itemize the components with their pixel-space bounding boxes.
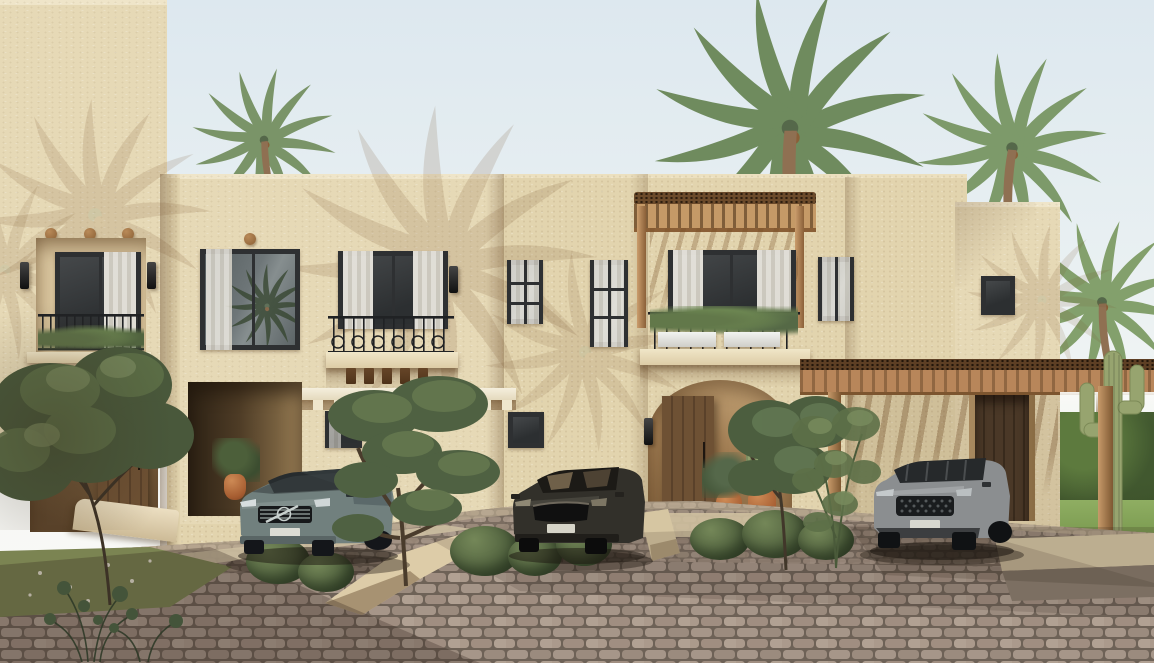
ground-window-b	[508, 412, 544, 448]
center-upper-left-window	[200, 249, 300, 350]
center-balcony-slab	[326, 352, 458, 368]
window-mullion	[608, 260, 611, 347]
parapet-slope-shadow	[955, 202, 1035, 287]
car-sedan-dark	[503, 446, 655, 566]
wall-sconce	[644, 418, 653, 445]
window-mullion	[507, 282, 543, 285]
wall-sconce	[147, 262, 156, 289]
window-curtain	[206, 249, 232, 350]
pergola-right-window	[818, 257, 854, 321]
tree-center-sculpted	[318, 368, 502, 588]
pergola-balcony-slab	[640, 349, 810, 365]
mid-narrow-window-a	[507, 260, 543, 324]
window-mullion	[252, 249, 255, 350]
beam-end-dot	[244, 233, 256, 245]
window-glass	[986, 281, 1010, 310]
mid-narrow-window-b	[590, 260, 628, 347]
window-mullion	[507, 302, 543, 305]
tree-shadow-on-wall	[0, 300, 175, 530]
planter-box	[724, 332, 780, 347]
window-mullion	[590, 288, 628, 291]
window-mullion	[524, 260, 527, 324]
window-mullion	[835, 257, 838, 321]
wall-sconce	[20, 262, 29, 289]
wall-sconce	[449, 266, 458, 293]
window-mullion	[590, 316, 628, 319]
center-juliet-railing	[328, 316, 454, 354]
right-square-window	[981, 276, 1015, 315]
architectural-rendering	[0, 0, 1154, 663]
planter-box	[658, 332, 716, 347]
window-glass	[513, 417, 539, 443]
shrub-carport	[784, 388, 888, 570]
shrub-bottom-left	[28, 572, 228, 663]
pergola-post-left	[637, 206, 646, 328]
